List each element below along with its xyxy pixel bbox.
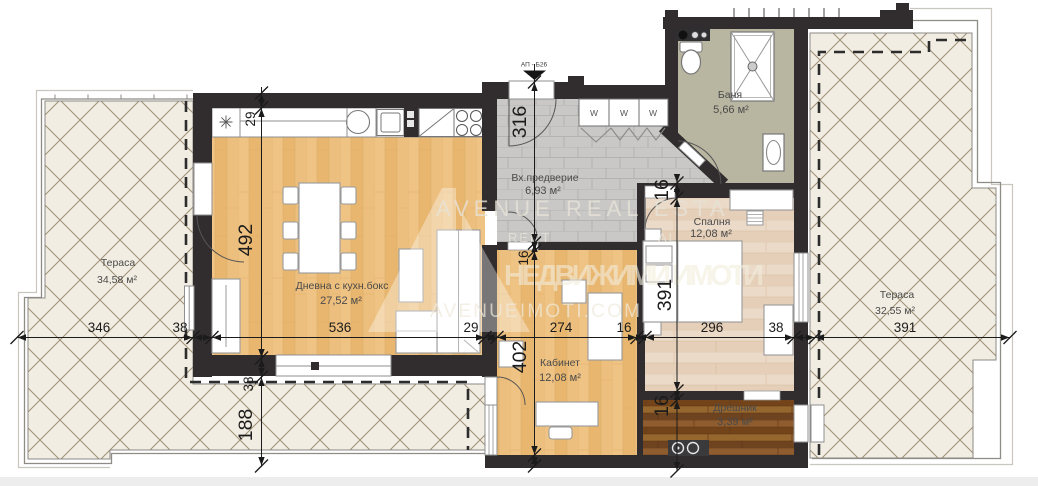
svg-text:АП - Б26: АП - Б26 (521, 62, 548, 69)
svg-text:274: 274 (550, 320, 573, 335)
svg-text:27,52 м²: 27,52 м² (320, 295, 362, 307)
svg-text:Дрешник: Дрешник (713, 402, 757, 414)
svg-text:188: 188 (235, 409, 257, 442)
svg-text:38: 38 (241, 376, 256, 391)
svg-text:НЕДВИЖИМИ ИМОТИ: НЕДВИЖИМИ ИМОТИ (504, 260, 762, 292)
svg-text:296: 296 (701, 320, 724, 335)
svg-text:AL: AL (658, 230, 678, 245)
svg-text:391: 391 (654, 279, 676, 312)
svg-text:AVENUEIMOTI.COM: AVENUEIMOTI.COM (430, 301, 642, 322)
svg-text:38: 38 (768, 320, 783, 335)
svg-text:391: 391 (894, 320, 917, 335)
svg-text:3,39 м²: 3,39 м² (717, 416, 753, 428)
svg-text:402: 402 (509, 341, 531, 374)
svg-text:5,66 м²: 5,66 м² (713, 104, 749, 116)
svg-text:Спалня: Спалня (694, 216, 731, 228)
svg-text:346: 346 (88, 320, 111, 335)
svg-text:Тераса: Тераса (101, 257, 136, 269)
svg-text:W: W (590, 108, 598, 118)
svg-text:316: 316 (509, 106, 531, 139)
svg-text:W: W (620, 108, 628, 118)
svg-text:492: 492 (235, 224, 257, 257)
svg-text:Вх.предверие: Вх.предверие (511, 172, 578, 184)
svg-text:29: 29 (463, 320, 478, 335)
svg-text:16: 16 (651, 395, 673, 417)
svg-text:RENT: RENT (508, 230, 551, 245)
svg-text:Дневна с кухн.бокс: Дневна с кухн.бокс (296, 280, 389, 292)
svg-text:6,93 м²: 6,93 м² (525, 185, 561, 197)
svg-text:16: 16 (516, 250, 531, 265)
svg-text:29: 29 (243, 111, 258, 126)
svg-text:16: 16 (616, 320, 631, 335)
svg-text:W: W (649, 108, 657, 118)
svg-text:AVENUE REAL ESTA: AVENUE REAL ESTA (436, 196, 730, 221)
svg-text:12,08 м²: 12,08 м² (539, 372, 581, 384)
svg-text:34,58 м²: 34,58 м² (97, 274, 137, 286)
svg-text:536: 536 (329, 320, 352, 335)
svg-text:12,08 м²: 12,08 м² (690, 228, 732, 240)
svg-text:Баня: Баня (718, 89, 742, 101)
svg-text:32,55 м²: 32,55 м² (875, 305, 915, 317)
svg-text:Кабинет: Кабинет (540, 357, 580, 369)
svg-text:Тераса: Тераса (880, 289, 915, 301)
svg-text:16: 16 (651, 179, 673, 201)
svg-text:38: 38 (172, 320, 187, 335)
